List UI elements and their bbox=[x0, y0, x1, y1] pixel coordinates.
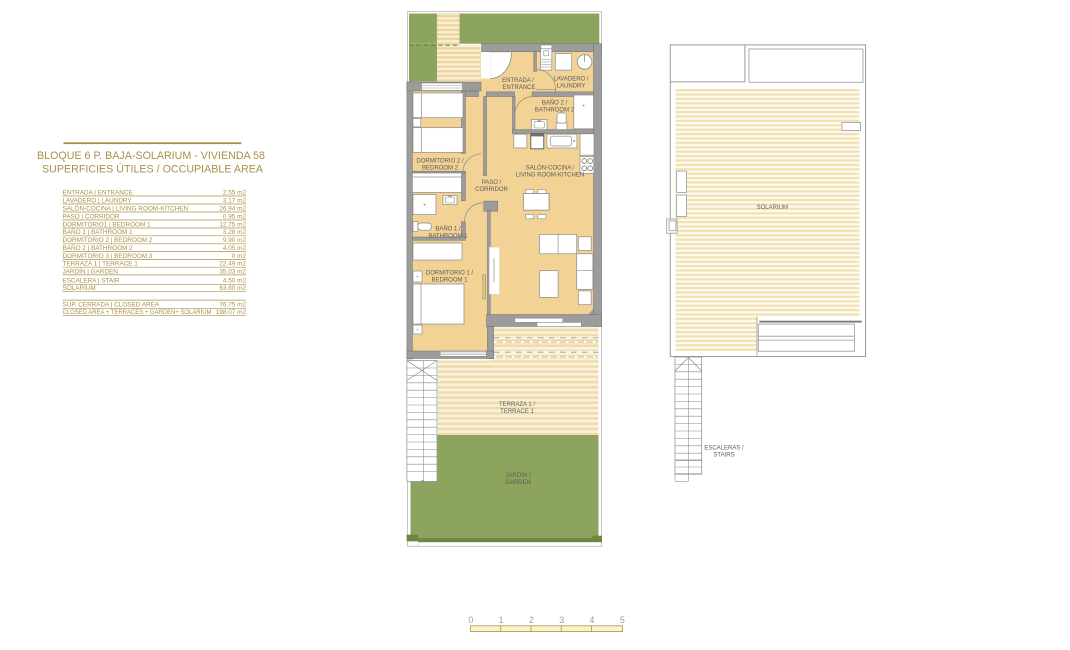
svg-text:ENTRADA /: ENTRADA / bbox=[502, 78, 534, 84]
svg-text:0: 0 bbox=[468, 615, 473, 625]
svg-text:PASO /: PASO / bbox=[482, 180, 502, 186]
svg-text:BEDROOM 1: BEDROOM 1 bbox=[431, 278, 468, 284]
svg-text:ENTRANCE: ENTRANCE bbox=[502, 85, 535, 91]
svg-text:BAÑO 2 | BATHROOM 2: BAÑO 2 | BATHROOM 2 bbox=[63, 243, 134, 252]
svg-text:BATHROOM 2: BATHROOM 2 bbox=[535, 108, 575, 114]
svg-text:1: 1 bbox=[499, 615, 504, 625]
svg-text:22.49 m2: 22.49 m2 bbox=[219, 261, 246, 268]
svg-text:CORRIDOR: CORRIDOR bbox=[475, 187, 508, 193]
svg-text:BLOQUE 6 P. BAJA-SOLARIUM - VI: BLOQUE 6 P. BAJA-SOLARIUM - VIVIENDA 58 bbox=[37, 150, 265, 162]
svg-text:12.75 m2: 12.75 m2 bbox=[219, 221, 246, 228]
svg-text:3: 3 bbox=[559, 615, 564, 625]
svg-text:ESCALERA | STAIR: ESCALERA | STAIR bbox=[63, 278, 120, 285]
svg-text:CLOSED AREA + TERRACES + GARDE: CLOSED AREA + TERRACES + GARDEN+ SOLARIU… bbox=[63, 309, 212, 316]
svg-text:3.17 m2: 3.17 m2 bbox=[223, 197, 247, 204]
svg-text:LAVADERO /: LAVADERO / bbox=[553, 77, 588, 83]
svg-text:9.90 m2: 9.90 m2 bbox=[223, 237, 247, 244]
svg-text:BATHROOM 1: BATHROOM 1 bbox=[428, 234, 468, 240]
svg-text:4.50 m2: 4.50 m2 bbox=[223, 278, 247, 285]
svg-text:DORMITORIO 2 | BEDROOM 2: DORMITORIO 2 | BEDROOM 2 bbox=[63, 237, 153, 244]
svg-text:0 m2: 0 m2 bbox=[232, 253, 247, 260]
svg-text:LIVING ROOM-KITCHEN: LIVING ROOM-KITCHEN bbox=[516, 173, 584, 179]
svg-text:STAIRS: STAIRS bbox=[713, 453, 734, 459]
svg-text:LAUNDRY: LAUNDRY bbox=[557, 84, 586, 90]
svg-text:JARDÍN /: JARDÍN / bbox=[505, 472, 530, 479]
svg-text:198.07 m2: 198.07 m2 bbox=[216, 309, 247, 316]
svg-text:GARDEN: GARDEN bbox=[505, 480, 531, 486]
svg-text:DORMITORIO 1 /: DORMITORIO 1 / bbox=[426, 271, 474, 277]
svg-text:TERRAZA 1 | TERRACE 1: TERRAZA 1 | TERRACE 1 bbox=[63, 261, 139, 268]
svg-text:3.28 m2: 3.28 m2 bbox=[223, 229, 247, 236]
svg-text:PASO | CORRIDOR: PASO | CORRIDOR bbox=[63, 213, 120, 220]
svg-text:BEDROOM 2: BEDROOM 2 bbox=[422, 166, 459, 172]
svg-text:SUPERFICIES ÚTILES / OCCUPIABL: SUPERFICIES ÚTILES / OCCUPIABLE AREA bbox=[42, 163, 264, 176]
svg-text:5: 5 bbox=[620, 615, 625, 625]
svg-text:BAÑO 1 | BATHROOM 1: BAÑO 1 | BATHROOM 1 bbox=[63, 227, 134, 236]
svg-text:76.75 m2: 76.75 m2 bbox=[219, 302, 246, 309]
svg-text:BAÑO 2 /: BAÑO 2 / bbox=[542, 100, 568, 107]
svg-text:DORMITORIO1 | BEDROOM 1: DORMITORIO1 | BEDROOM 1 bbox=[63, 221, 152, 228]
svg-text:LAVADERO | LAUNDRY: LAVADERO | LAUNDRY bbox=[63, 197, 133, 204]
svg-text:SALÓN-COCINA | LIVING ROOM-K: SALÓN-COCINA | LIVING ROOM-KITCHEN bbox=[63, 203, 189, 212]
svg-text:ESCALERAS /: ESCALERAS / bbox=[704, 446, 744, 452]
svg-text:63.80 m2: 63.80 m2 bbox=[219, 285, 246, 292]
svg-text:ENTRADA | ENTRANCE: ENTRADA | ENTRANCE bbox=[63, 189, 133, 196]
svg-text:SALÓN-COCINA /: SALÓN-COCINA / bbox=[526, 165, 575, 172]
svg-text:4: 4 bbox=[590, 615, 595, 625]
svg-text:BAÑO 1 /: BAÑO 1 / bbox=[435, 226, 461, 233]
svg-text:0.95 m2: 0.95 m2 bbox=[223, 213, 247, 220]
svg-text:SUP. CERRADA | CLOSED AREA: SUP. CERRADA | CLOSED AREA bbox=[63, 302, 160, 309]
svg-text:TERRACE 1: TERRACE 1 bbox=[500, 409, 534, 415]
svg-text:2.55 m2: 2.55 m2 bbox=[223, 189, 247, 196]
svg-text:SOLARIUM: SOLARIUM bbox=[63, 285, 96, 292]
svg-text:DORMITORIO 2 /: DORMITORIO 2 / bbox=[416, 159, 464, 165]
svg-text:35.03 m2: 35.03 m2 bbox=[219, 268, 246, 275]
svg-text:2: 2 bbox=[529, 615, 534, 625]
svg-text:TERRAZA 1 /: TERRAZA 1 / bbox=[499, 402, 535, 408]
svg-text:4.05 m2: 4.05 m2 bbox=[223, 245, 247, 252]
svg-text:DORMITORIO 3 | BEDROOM 3: DORMITORIO 3 | BEDROOM 3 bbox=[63, 253, 153, 260]
svg-text:26.94 m2: 26.94 m2 bbox=[219, 205, 246, 212]
svg-text:SOLARIUM: SOLARIUM bbox=[757, 205, 788, 211]
svg-text:JARDÍN | GARDEN: JARDÍN | GARDEN bbox=[63, 266, 119, 275]
